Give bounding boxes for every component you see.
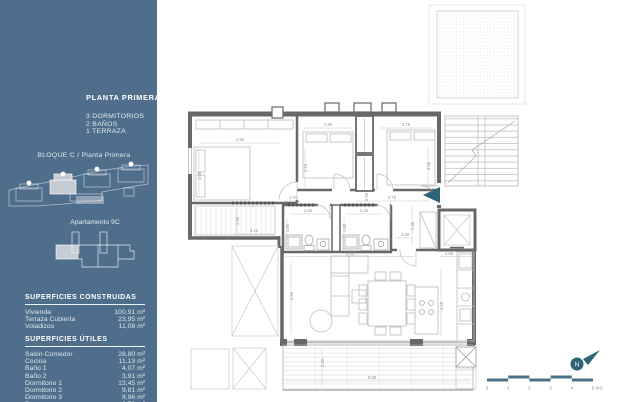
bedroom-furniture: [194, 120, 435, 200]
svg-text:1.80: 1.80: [285, 223, 290, 232]
entry-closet: [420, 212, 436, 248]
svg-text:1.50: 1.50: [235, 216, 240, 225]
svg-text:5 (m): 5 (m): [592, 386, 603, 391]
scale-bar: 012345 (m): [486, 376, 603, 391]
row-value: 11,13 m²: [119, 358, 145, 365]
sidebar: PLANTA PRIMERA 3 DORMITORIOS 2 BAÑOS 1 T…: [0, 0, 157, 402]
row-value: 100,91 m²: [114, 309, 145, 316]
surfaces-useful-heading: SUPERFICIES ÚTILES: [25, 336, 145, 347]
unit-markers: [27, 162, 134, 186]
page-title: PLANTA PRIMERA: [86, 93, 157, 102]
row-label: Salón-Comedor: [25, 351, 73, 358]
svg-text:2: 2: [528, 386, 531, 391]
row-value: 13,45 m²: [118, 380, 145, 387]
site-plan-thumbnail: [6, 160, 152, 214]
row-label: Cocina: [25, 358, 46, 365]
svg-text:1.70: 1.70: [289, 195, 298, 200]
page: PLANTA PRIMERA 3 DORMITORIOS 2 BAÑOS 1 T…: [0, 0, 630, 402]
table-row: Baño 1 4,07 m²: [25, 365, 145, 372]
table-row: Baño 2 3,91 m²: [25, 373, 145, 380]
terrace: [191, 345, 476, 390]
north-compass-icon: N: [571, 350, 601, 371]
staircase: [445, 116, 518, 186]
svg-text:2.68: 2.68: [445, 251, 454, 256]
svg-text:2.76: 2.76: [402, 122, 411, 127]
apartment-label: Apartamento 9C: [33, 219, 157, 226]
svg-text:1: 1: [507, 386, 510, 391]
feature-bedrooms: 3 DORMITORIOS: [86, 113, 144, 121]
svg-text:2.20: 2.20: [320, 358, 325, 367]
roof-hatch-area: [429, 5, 525, 104]
svg-text:2.10: 2.10: [250, 228, 259, 233]
row-label: Baño 2: [25, 373, 47, 380]
svg-text:1.28: 1.28: [401, 232, 410, 237]
table-row: Cocina 11,13 m²: [25, 358, 145, 365]
block-label: BLOQUE C / Planta Primera: [4, 152, 157, 159]
table-row: Dormitorio 3 8,96 m²: [25, 394, 145, 401]
svg-text:2.55: 2.55: [304, 208, 313, 213]
svg-text:2.40: 2.40: [360, 208, 369, 213]
svg-text:3.08: 3.08: [426, 161, 431, 170]
svg-text:0.98: 0.98: [364, 192, 369, 201]
table-row: Vivienda 100,91 m²: [25, 309, 145, 316]
table-row: Terraza Cubierta 23,95 m²: [25, 316, 145, 323]
scale-bar-labels: 012345 (m): [486, 386, 603, 391]
row-label: Dormitorio 3: [25, 394, 62, 401]
row-label: Dormitorio 2: [25, 387, 62, 394]
svg-text:1.80: 1.80: [342, 223, 347, 232]
svg-text:4: 4: [571, 386, 574, 391]
svg-text:4.28: 4.28: [439, 301, 444, 310]
svg-text:2.50: 2.50: [410, 221, 415, 230]
living-furniture: [310, 256, 415, 335]
row-label: Vivienda: [25, 309, 51, 316]
compass-letter: N: [575, 361, 580, 368]
table-row: Voladizos 11,08 m²: [25, 323, 145, 330]
side-void: [232, 246, 278, 336]
svg-text:6.48: 6.48: [346, 251, 355, 256]
apartment-highlight: [56, 245, 78, 259]
row-label: Voladizos: [25, 323, 54, 330]
row-value: 3,91 m²: [122, 373, 145, 380]
table-row: Dormitorio 1 13,45 m²: [25, 380, 145, 387]
svg-text:3.23: 3.23: [303, 163, 308, 172]
svg-text:2.86: 2.86: [324, 122, 333, 127]
row-value: 28,80 m²: [118, 351, 145, 358]
surfaces-useful-table: SUPERFICIES ÚTILES Salón-Comedor 28,80 m…: [25, 336, 145, 402]
row-value: 4,07 m²: [122, 365, 145, 372]
apartment-thumbnail: [52, 229, 138, 273]
svg-text:3.68: 3.68: [197, 171, 202, 180]
row-value: 8,96 m²: [122, 394, 145, 401]
table-row: Salón-Comedor 28,80 m²: [25, 351, 145, 358]
svg-text:3: 3: [549, 386, 552, 391]
row-label: Terraza Cubierta: [25, 316, 75, 323]
surfaces-built-table: SUPERFICIES CONSTRUIDAS Vivienda 100,91 …: [25, 294, 145, 331]
row-value: 23,95 m²: [118, 316, 145, 323]
svg-text:3.70: 3.70: [388, 195, 397, 200]
row-label: Dormitorio 1: [25, 380, 62, 387]
surfaces-built-heading: SUPERFICIES CONSTRUIDAS: [25, 294, 145, 305]
row-value: 11,08 m²: [119, 323, 145, 330]
feature-bathrooms: 2 BAÑOS: [86, 121, 144, 129]
highlighted-block: [50, 174, 104, 204]
floor-plan-drawing: 2.803.682.863.232.763.082.101.501.700.98…: [157, 0, 630, 402]
svg-text:2.80: 2.80: [236, 137, 245, 142]
svg-text:8.88: 8.88: [368, 375, 377, 380]
svg-text:4.56: 4.56: [289, 291, 294, 300]
table-row: Dormitorio 2 9,81 m²: [25, 387, 145, 394]
row-value: 9,81 m²: [122, 387, 145, 394]
features-list: 3 DORMITORIOS 2 BAÑOS 1 TERRAZA: [86, 113, 144, 136]
elevator-shaft: [439, 210, 475, 250]
svg-text:0: 0: [486, 386, 489, 391]
kitchen: [415, 252, 474, 341]
feature-terrace: 1 TERRAZA: [86, 128, 144, 136]
row-label: Baño 1: [25, 365, 47, 372]
